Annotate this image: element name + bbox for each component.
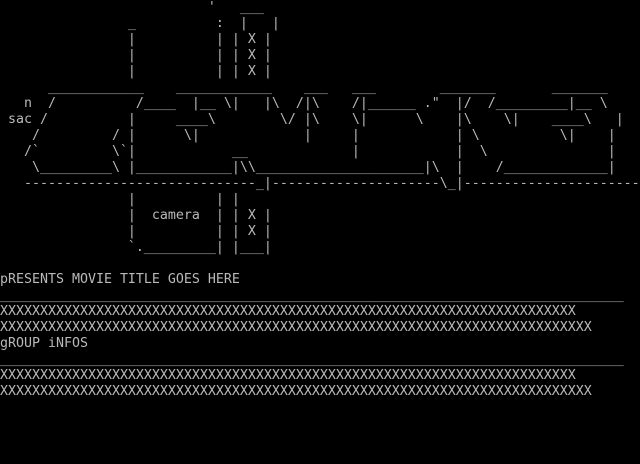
movie-info-placeholder-rows: XXXXXXXXXXXXXXXXXXXXXXXXXXXXXXXXXXXXXXXX…: [0, 304, 640, 336]
group-info-placeholder-rows: XXXXXXXXXXXXXXXXXXXXXXXXXXXXXXXXXXXXXXXX…: [0, 368, 640, 400]
ascii-logo-art: ' ___ _ : | | | | | X | | | | X | | | | …: [0, 0, 640, 272]
divider-rule-bottom: ________________________________________…: [0, 352, 640, 368]
presents-title-line: pRESENTS MOVIE TITLE GOES HERE: [0, 272, 640, 288]
group-infos-heading: gROUP iNFOS: [0, 336, 640, 352]
terminal-screen: ' ___ _ : | | | | | X | | | | X | | | | …: [0, 0, 640, 464]
divider-rule-top: ________________________________________…: [0, 288, 640, 304]
